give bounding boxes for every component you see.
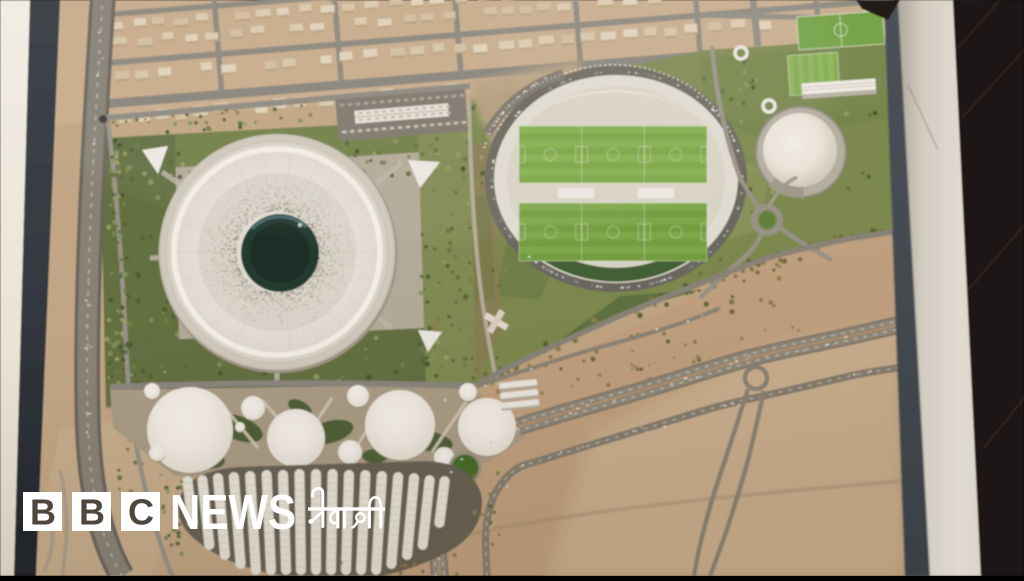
svg-text:NEWS: NEWS [170,486,296,540]
svg-text:B: B [79,492,105,533]
svg-text:B: B [30,492,56,533]
svg-text:C: C [128,492,154,533]
